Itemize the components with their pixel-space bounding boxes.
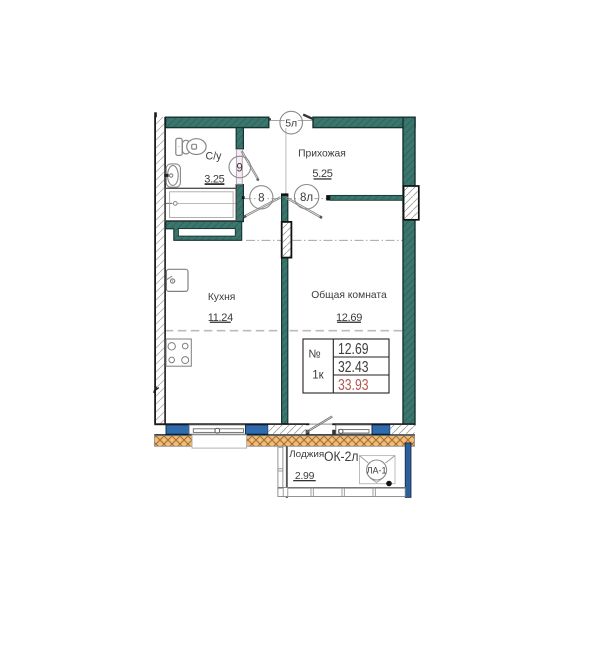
svg-text:ЛА-1: ЛА-1 bbox=[367, 466, 387, 476]
svg-text:ОК-2л: ОК-2л bbox=[324, 449, 359, 465]
svg-text:8л: 8л bbox=[300, 192, 313, 204]
svg-text:Общая комната: Общая комната bbox=[311, 289, 387, 301]
svg-text:5л: 5л bbox=[285, 117, 297, 129]
svg-text:9: 9 bbox=[236, 162, 242, 174]
svg-text:№: № bbox=[308, 349, 320, 361]
svg-text:Лоджия: Лоджия bbox=[289, 448, 324, 459]
svg-text:1к: 1к bbox=[312, 370, 324, 382]
svg-text:С/у: С/у bbox=[206, 150, 223, 162]
svg-text:Кухня: Кухня bbox=[208, 292, 236, 303]
svg-text:8: 8 bbox=[258, 193, 264, 205]
svg-text:33.93: 33.93 bbox=[338, 377, 369, 394]
svg-text:Прихожая: Прихожая bbox=[298, 149, 346, 160]
svg-text:12.69: 12.69 bbox=[338, 341, 369, 358]
svg-text:32.43: 32.43 bbox=[338, 359, 369, 376]
